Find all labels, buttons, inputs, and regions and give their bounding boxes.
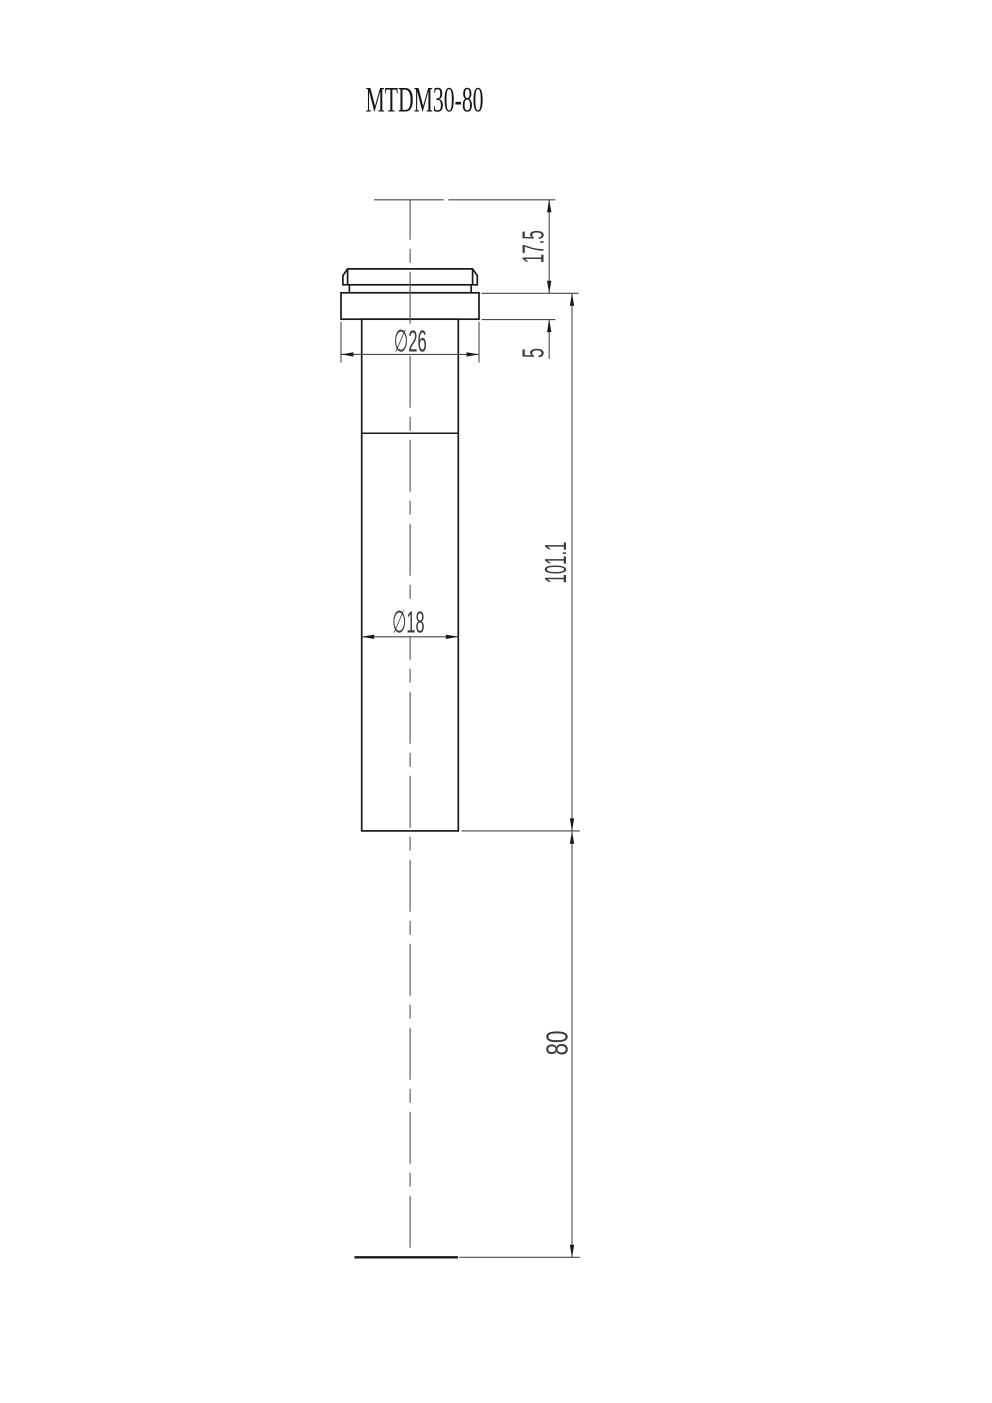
svg-text:MTDM30-80: MTDM30-80 [366, 80, 484, 120]
svg-text:∅26: ∅26 [394, 324, 427, 359]
svg-text:17.5: 17.5 [516, 230, 551, 263]
svg-text:∅18: ∅18 [392, 605, 425, 640]
svg-text:5: 5 [516, 348, 551, 358]
svg-text:80: 80 [540, 1031, 575, 1056]
svg-text:101.1: 101.1 [538, 542, 573, 584]
